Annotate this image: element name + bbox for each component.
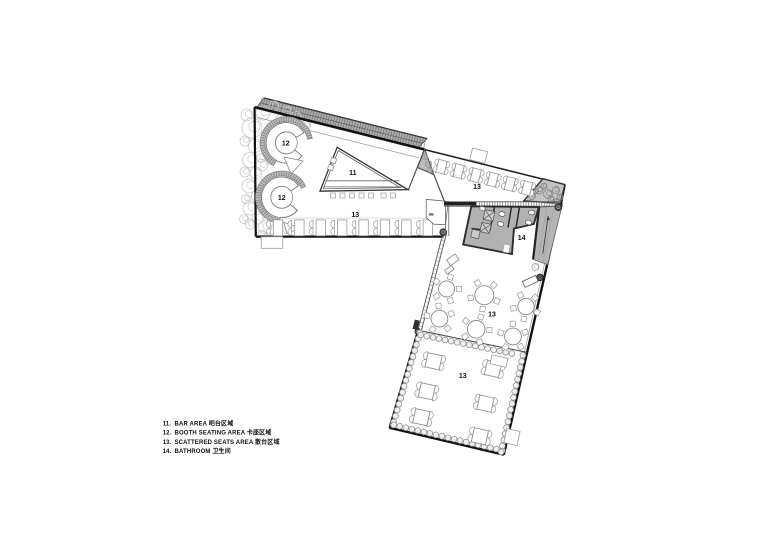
svg-text:12: 12 (278, 195, 286, 202)
svg-text:12: 12 (282, 140, 290, 147)
svg-text:13: 13 (488, 312, 496, 319)
svg-text:BATHROOM 卫生间: BATHROOM 卫生间 (175, 447, 231, 455)
svg-text:BOOTH SEATING AREA 卡座区域: BOOTH SEATING AREA 卡座区域 (175, 429, 272, 437)
svg-text:14: 14 (518, 235, 526, 242)
svg-text:BAR AREA 吧台区域: BAR AREA 吧台区域 (175, 419, 234, 427)
svg-text:SCATTERED SEATS AREA 散台区域: SCATTERED SEATS AREA 散台区域 (175, 438, 280, 446)
svg-text:13: 13 (351, 212, 359, 219)
svg-text:11: 11 (349, 170, 357, 177)
svg-text:13: 13 (459, 373, 467, 380)
svg-text:13: 13 (473, 184, 481, 191)
svg-text:11.: 11. (163, 421, 172, 427)
svg-text:12.: 12. (163, 431, 172, 437)
svg-text:14.: 14. (163, 449, 172, 455)
svg-text:13.: 13. (163, 440, 172, 446)
